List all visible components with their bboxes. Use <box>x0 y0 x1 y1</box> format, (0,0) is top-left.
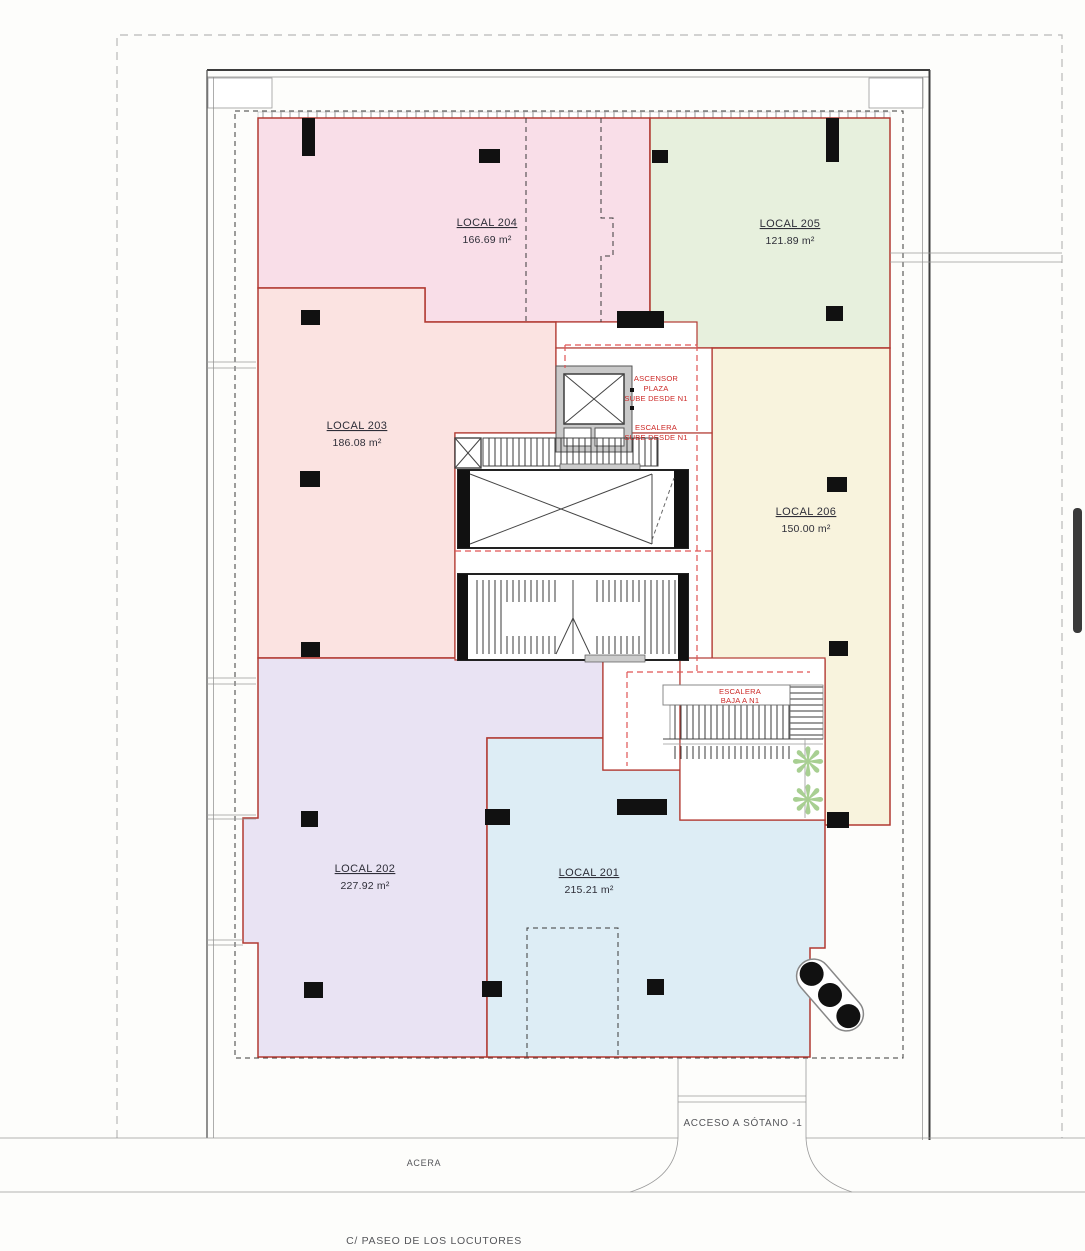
column <box>617 311 664 328</box>
column <box>827 477 847 492</box>
acera-label: ACERA <box>407 1158 442 1168</box>
stair-landing <box>592 602 643 636</box>
column <box>829 641 848 656</box>
column <box>827 812 849 828</box>
ascensor-label: PLAZA <box>643 384 669 393</box>
local-202-name: LOCAL 202 <box>335 863 396 875</box>
escalera-baja-label: ESCALERA <box>719 687 762 696</box>
column <box>301 811 318 827</box>
crossed-box <box>458 470 688 548</box>
stair-landing <box>505 602 556 636</box>
escalera-sube-label: SUBE DESDE N1 <box>624 433 687 442</box>
crossed-box-wall <box>458 470 470 548</box>
local-203-area: 186.08 m² <box>332 437 381 449</box>
column <box>652 150 668 163</box>
down-stair-treads-lower <box>670 746 790 759</box>
elevator-door-mark <box>630 406 634 410</box>
plants: ❋ ❋ <box>791 738 825 824</box>
local-201-area: 215.21 m² <box>564 884 613 896</box>
escalera-sube-label: ESCALERA <box>635 423 678 432</box>
column <box>647 979 664 995</box>
column <box>485 809 510 825</box>
local-206-name: LOCAL 206 <box>776 506 837 518</box>
column <box>301 310 320 325</box>
lower-stairs-wall <box>458 574 468 660</box>
upper-stair <box>455 438 658 471</box>
local-205-area: 121.89 m² <box>765 235 814 247</box>
column <box>302 118 315 156</box>
crossed-box-wall <box>674 470 688 548</box>
local-203-name: LOCAL 203 <box>327 420 388 432</box>
plant-icon: ❋ <box>791 778 825 824</box>
column <box>479 149 500 163</box>
column <box>300 471 320 487</box>
local-201-name: LOCAL 201 <box>559 867 620 879</box>
column <box>304 982 323 998</box>
elevator-door-mark <box>630 388 634 392</box>
column <box>482 981 502 997</box>
local-204-name: LOCAL 204 <box>457 217 518 229</box>
local-202-area: 227.92 m² <box>340 880 389 892</box>
column <box>826 306 843 321</box>
core-zone-lower-left <box>603 658 680 770</box>
down-stair-side-treads <box>790 685 823 739</box>
escalera-baja-label: BAJA A N1 <box>721 696 760 705</box>
local-204-area: 166.69 m² <box>462 234 511 246</box>
column <box>301 642 320 657</box>
lower-stairs-wall <box>678 574 688 660</box>
calle-label: C/ PASEO DE LOS LOCUTORES <box>346 1235 522 1247</box>
local-206-area: 150.00 m² <box>781 523 830 535</box>
floor-plan-canvas: ❋ ❋ <box>0 0 1085 1251</box>
scrollbar-thumb[interactable] <box>1073 508 1082 633</box>
floor-plan-drawing: ❋ ❋ <box>0 0 1085 1251</box>
column <box>617 799 667 815</box>
lower-stairs <box>458 574 688 662</box>
corner-box-right <box>869 78 923 108</box>
ascensor-label: ASCENSOR <box>634 374 679 383</box>
ascensor-label: SUBE DESDE N1 <box>624 394 687 403</box>
stair-treads <box>483 438 658 466</box>
local-205-region <box>650 118 890 348</box>
column <box>826 118 839 162</box>
acceso-sotano-label: ACCESO A SÓTANO -1 <box>683 1116 802 1129</box>
down-stair-treads <box>670 705 790 739</box>
stair-landing-notch <box>585 655 645 662</box>
local-205-name: LOCAL 205 <box>760 218 821 230</box>
corner-box-left <box>208 78 272 108</box>
